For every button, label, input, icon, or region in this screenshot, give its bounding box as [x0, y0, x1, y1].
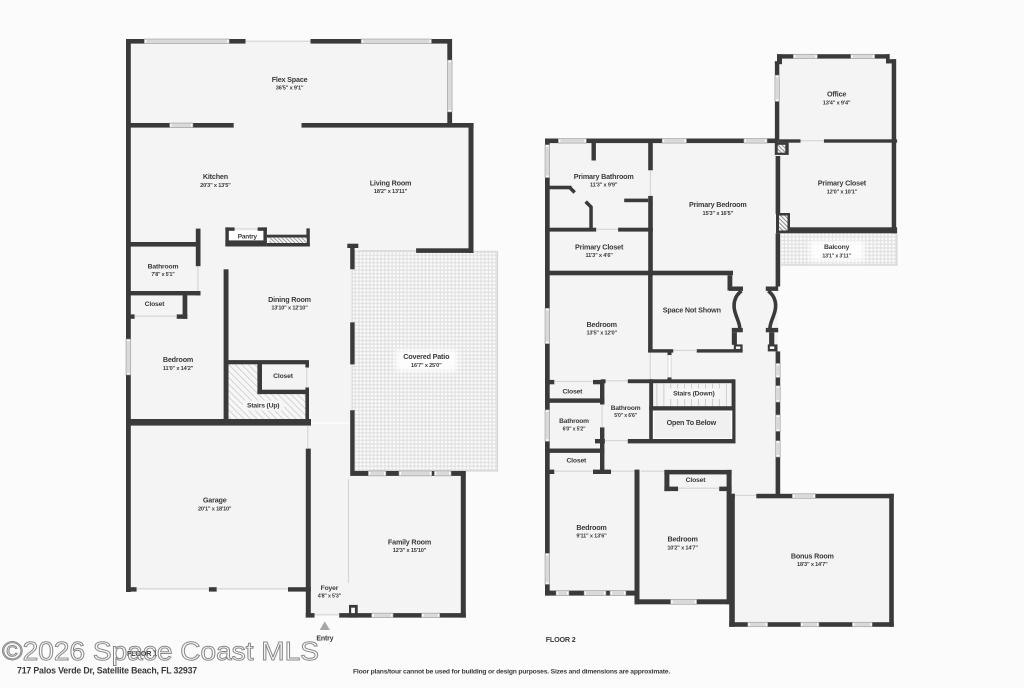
- svg-text:Bedroom: Bedroom: [587, 320, 617, 329]
- svg-text:5'0" x 6'6": 5'0" x 6'6": [614, 413, 637, 419]
- svg-text:Bathroom: Bathroom: [611, 405, 641, 412]
- svg-text:Living Room: Living Room: [370, 178, 412, 187]
- svg-text:Closet: Closet: [273, 373, 294, 380]
- svg-text:©2026 Space Coast MLS: ©2026 Space Coast MLS: [2, 636, 319, 666]
- svg-text:13'1" x 3'11": 13'1" x 3'11": [822, 254, 851, 260]
- svg-text:36'5" x 9'1": 36'5" x 9'1": [276, 86, 304, 92]
- svg-text:Floor plans/tour cannot be use: Floor plans/tour cannot be used for buil…: [353, 668, 670, 675]
- svg-text:13'5" x 12'0": 13'5" x 12'0": [586, 330, 617, 336]
- svg-text:Bathroom: Bathroom: [148, 263, 179, 270]
- svg-text:Stairs (Up): Stairs (Up): [247, 403, 279, 410]
- svg-text:13'10" x 12'10": 13'10" x 12'10": [271, 306, 308, 312]
- svg-text:Closet: Closet: [566, 458, 587, 465]
- svg-text:18'2" x 13'11": 18'2" x 13'11": [374, 189, 408, 195]
- svg-text:717 Palos Verde Dr, Satellite: 717 Palos Verde Dr, Satellite Beach, FL …: [17, 666, 197, 676]
- svg-text:Garage: Garage: [203, 496, 227, 505]
- svg-text:Closet: Closet: [686, 477, 707, 484]
- svg-text:Bedroom: Bedroom: [163, 355, 193, 364]
- svg-text:Pantry: Pantry: [238, 234, 258, 241]
- svg-text:Kitchen: Kitchen: [203, 172, 228, 181]
- svg-text:13'4" x 9'4": 13'4" x 9'4": [823, 100, 851, 106]
- svg-text:12'3" x 15'10": 12'3" x 15'10": [393, 548, 427, 554]
- svg-text:Covered Patio: Covered Patio: [403, 352, 450, 361]
- svg-text:Open To Below: Open To Below: [667, 418, 717, 427]
- svg-text:Family Room: Family Room: [388, 537, 431, 546]
- svg-text:Primary Closet: Primary Closet: [575, 242, 624, 251]
- svg-text:Stairs (Down): Stairs (Down): [673, 391, 714, 398]
- svg-text:11'0" x 14'2": 11'0" x 14'2": [163, 366, 194, 372]
- svg-text:Dining Room: Dining Room: [268, 295, 311, 304]
- svg-text:Office: Office: [827, 89, 846, 98]
- svg-text:Bathroom: Bathroom: [559, 418, 589, 425]
- svg-text:11'3" x 9'9": 11'3" x 9'9": [590, 183, 618, 189]
- svg-text:20'1" x 18'10": 20'1" x 18'10": [198, 506, 232, 512]
- svg-text:Bedroom: Bedroom: [576, 523, 606, 532]
- svg-text:Space Not Shown: Space Not Shown: [663, 306, 721, 315]
- svg-text:Foyer: Foyer: [321, 585, 339, 592]
- svg-text:Primary Closet: Primary Closet: [818, 178, 867, 187]
- svg-text:Primary Bathroom: Primary Bathroom: [574, 172, 634, 181]
- svg-text:12'0" x 10'1": 12'0" x 10'1": [827, 189, 858, 195]
- svg-text:4'8" x 5'3": 4'8" x 5'3": [318, 594, 342, 600]
- svg-text:Closet: Closet: [563, 388, 584, 395]
- svg-text:20'3" x 13'5": 20'3" x 13'5": [200, 183, 231, 189]
- svg-text:16'7" x 25'0": 16'7" x 25'0": [411, 363, 442, 369]
- svg-text:11'3" x 4'6": 11'3" x 4'6": [585, 253, 613, 259]
- svg-text:Primary Bedroom: Primary Bedroom: [689, 200, 747, 209]
- svg-text:Closet: Closet: [145, 301, 166, 308]
- svg-text:Balcony: Balcony: [824, 244, 850, 251]
- svg-text:18'3" x 14'7": 18'3" x 14'7": [797, 562, 828, 568]
- svg-text:7'8" x 5'1": 7'8" x 5'1": [151, 272, 175, 278]
- svg-text:10'2" x 14'7": 10'2" x 14'7": [667, 545, 698, 551]
- svg-text:Flex Space: Flex Space: [272, 75, 308, 84]
- svg-text:Bonus Room: Bonus Room: [791, 552, 834, 561]
- svg-text:Bedroom: Bedroom: [667, 535, 697, 544]
- svg-text:6'0" x 5'2": 6'0" x 5'2": [563, 427, 586, 433]
- svg-text:15'3" x 16'5": 15'3" x 16'5": [703, 211, 734, 217]
- svg-text:FLOOR 2: FLOOR 2: [546, 635, 576, 644]
- svg-text:9'11" x 13'6": 9'11" x 13'6": [576, 534, 607, 540]
